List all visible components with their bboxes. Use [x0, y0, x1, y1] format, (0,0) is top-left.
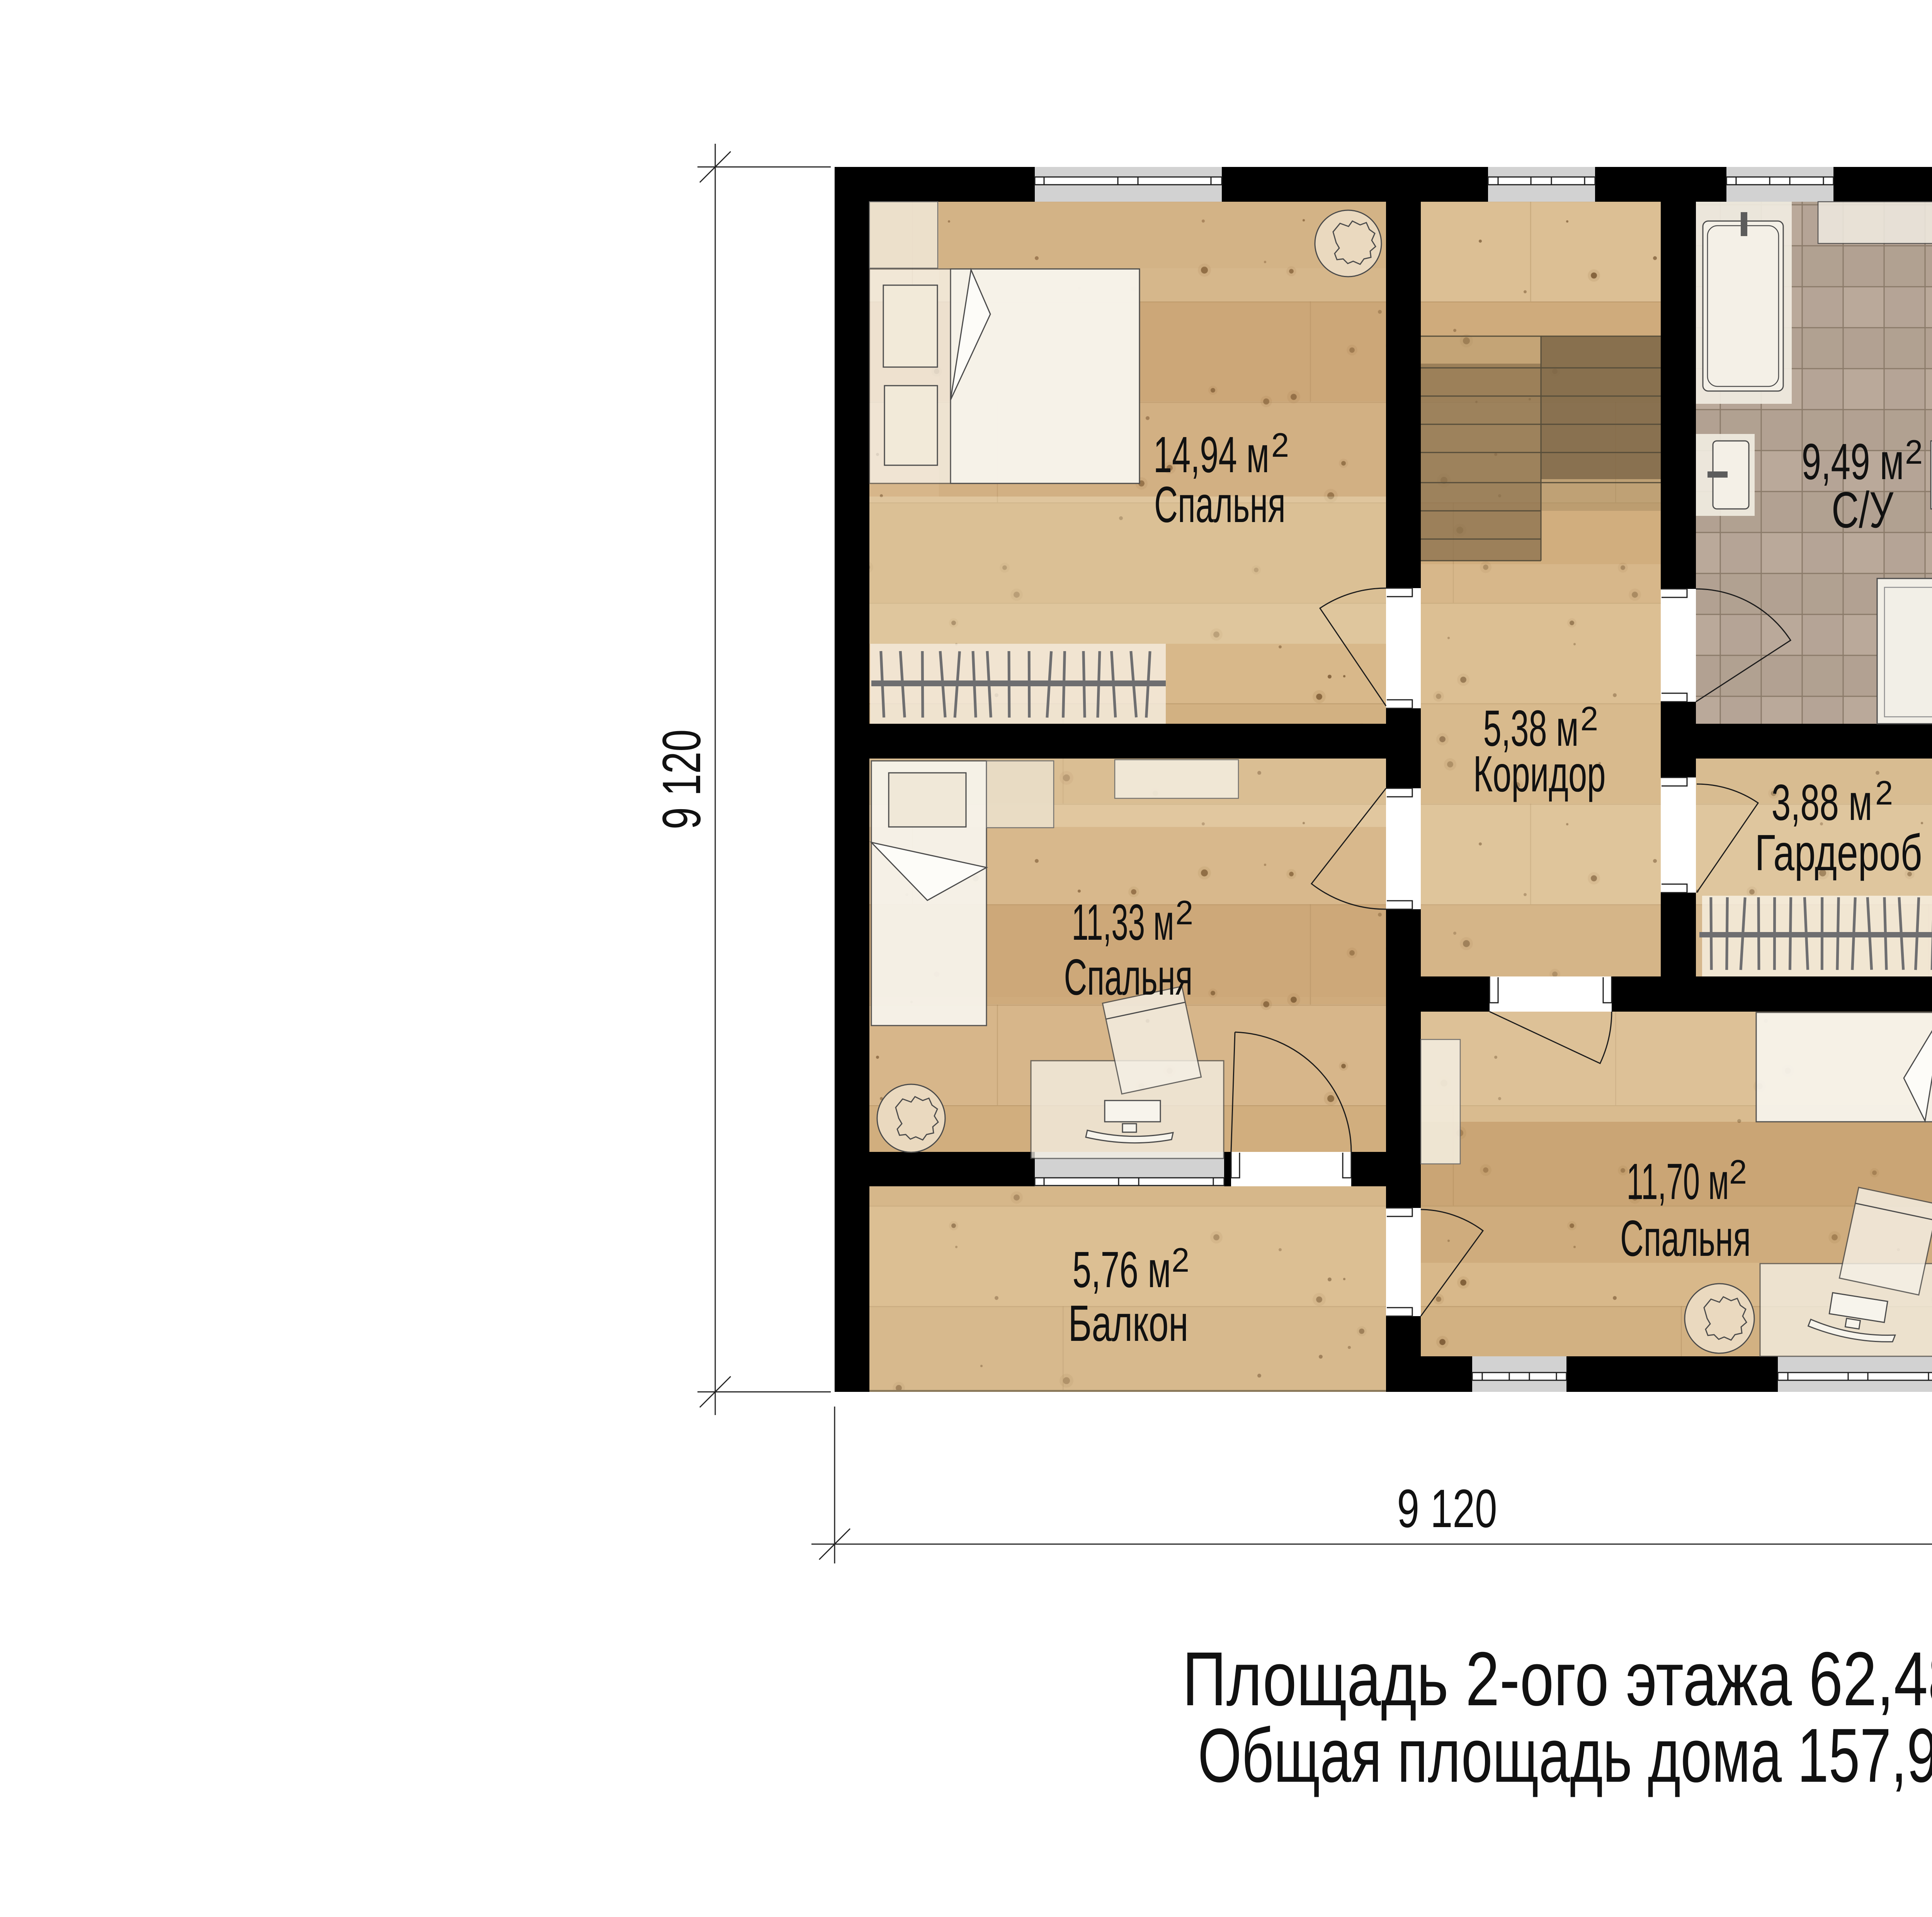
- svg-text:14,94 м: 14,94 м: [1153, 426, 1269, 483]
- svg-text:3,88 м: 3,88 м: [1772, 774, 1872, 831]
- svg-text:5,76 м: 5,76 м: [1073, 1241, 1171, 1298]
- svg-text:2: 2: [1271, 426, 1289, 464]
- svg-text:11,33 м: 11,33 м: [1072, 894, 1174, 951]
- svg-text:Балкон: Балкон: [1068, 1295, 1189, 1352]
- svg-text:2: 2: [1729, 1153, 1747, 1191]
- svg-text:9 120: 9 120: [651, 730, 712, 830]
- svg-text:С/У: С/У: [1832, 481, 1894, 538]
- svg-text:9 120: 9 120: [1397, 1478, 1497, 1539]
- svg-text:2: 2: [1175, 893, 1193, 932]
- svg-text:2: 2: [1172, 1241, 1189, 1279]
- svg-text:2: 2: [1875, 774, 1893, 812]
- svg-text:Спальня: Спальня: [1064, 949, 1193, 1005]
- svg-text:Спальня: Спальня: [1620, 1210, 1751, 1267]
- svg-text:Гардероб: Гардероб: [1755, 824, 1922, 881]
- svg-text:2: 2: [1580, 699, 1598, 738]
- svg-text:Коридор: Коридор: [1473, 745, 1606, 802]
- svg-text:Спальня: Спальня: [1154, 476, 1286, 533]
- svg-text:11,70 м: 11,70 м: [1627, 1153, 1729, 1210]
- svg-text:Площадь 2-ого этажа 62,48 м2: Площадь 2-ого этажа 62,48 м2: [1182, 1636, 1932, 1721]
- svg-text:2: 2: [1905, 433, 1923, 471]
- svg-text:Общая площадь дома 157,97 м2: Общая площадь дома 157,97 м2: [1198, 1713, 1932, 1798]
